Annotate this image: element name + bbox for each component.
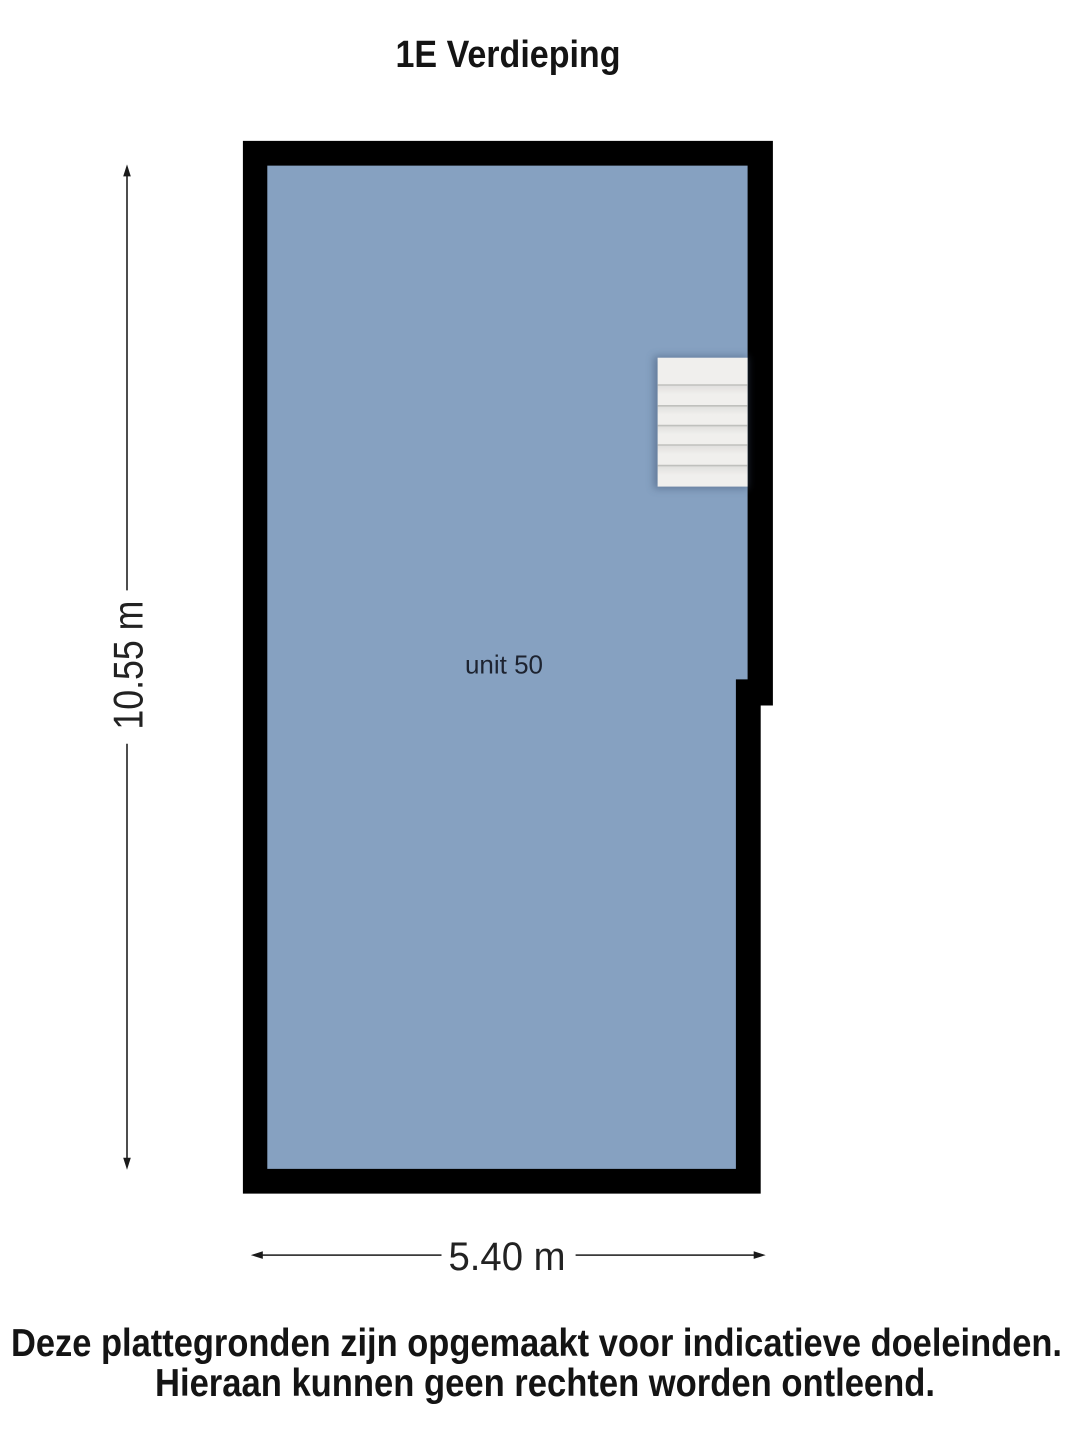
svg-text:Hieraan kunnen geen rechten wo: Hieraan kunnen geen rechten worden ontle… xyxy=(155,1362,935,1405)
svg-text:unit 50: unit 50 xyxy=(465,649,543,679)
svg-text:10.55 m: 10.55 m xyxy=(105,601,152,730)
svg-text:Deze plattegronden zijn opgema: Deze plattegronden zijn opgemaakt voor i… xyxy=(11,1322,1062,1365)
svg-text:5.40 m: 5.40 m xyxy=(449,1235,566,1279)
svg-text:1E Verdieping: 1E Verdieping xyxy=(396,34,621,76)
